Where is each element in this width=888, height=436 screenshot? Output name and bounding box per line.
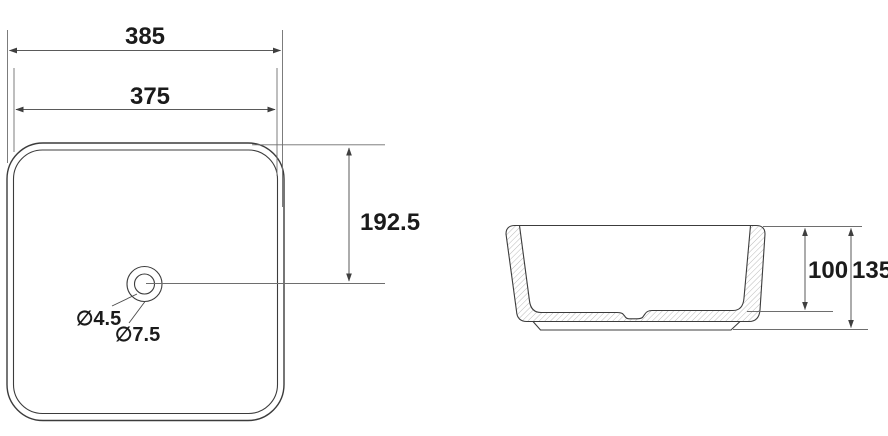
drain-hole-circle (135, 274, 155, 294)
top-view-inner-outline (14, 150, 278, 414)
dim-label-overall-height: 135 (852, 257, 888, 284)
callout-drain-recess: ∅7.5 (115, 302, 160, 347)
top-view: 385 375 192.5 ∅4.5 ∅7.5 (7, 23, 420, 421)
leader-line (129, 302, 145, 324)
dim-drain-center-offset: 192.5 (146, 145, 420, 284)
dim-inner-width: 375 (14, 68, 277, 176)
dim-overall-width: 385 (8, 23, 283, 207)
dim-label-drain-center-offset: 192.5 (360, 209, 420, 236)
leader-line (112, 294, 137, 306)
label-drain-recess-diameter: ∅7.5 (115, 324, 160, 346)
side-view-section-walls (506, 226, 765, 322)
side-view-foot-outline (533, 322, 740, 331)
dim-label-bowl-depth: 100 (808, 257, 848, 284)
dim-label-inner-width: 375 (130, 83, 170, 110)
dim-label-overall-width: 385 (125, 23, 165, 50)
top-view-outer-outline (7, 143, 284, 421)
side-view: 100 135 (506, 226, 888, 331)
technical-drawing: 385 375 192.5 ∅4.5 ∅7.5 (0, 0, 888, 436)
